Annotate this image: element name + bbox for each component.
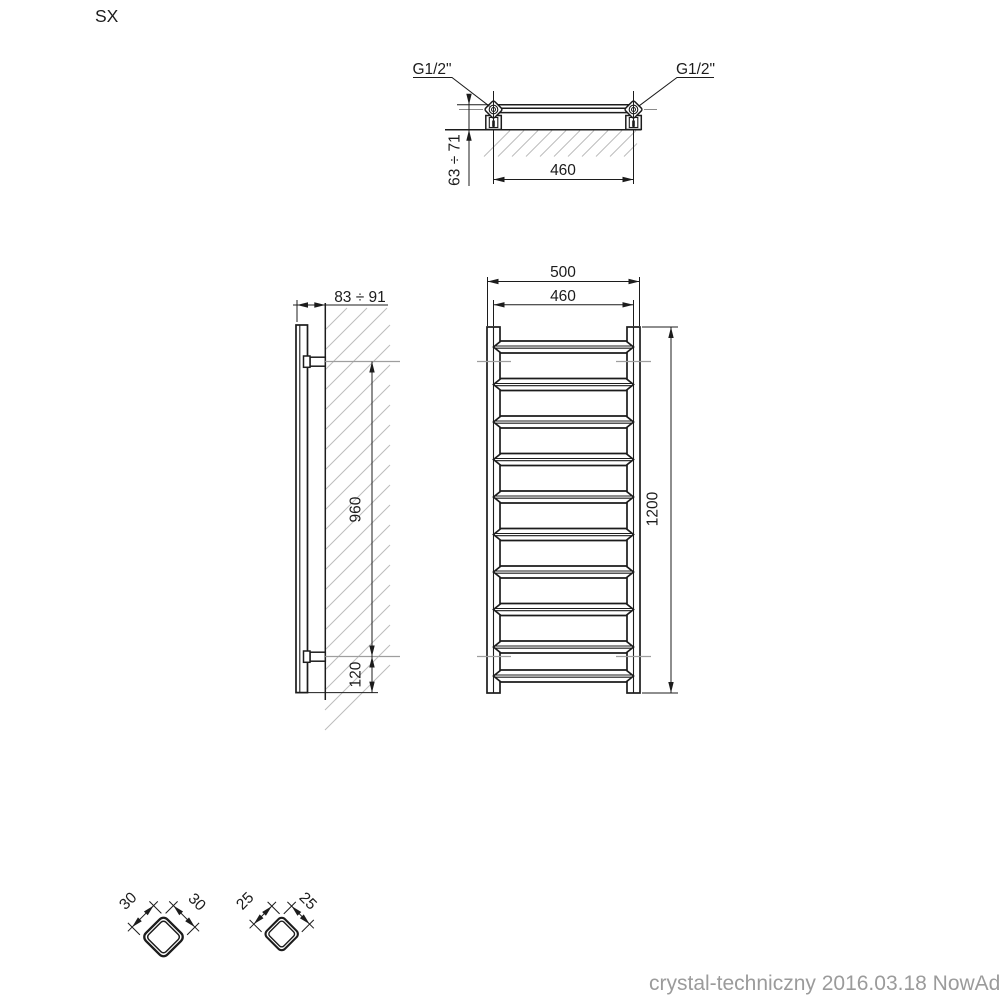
top-view-connection-right-label: G1/2" <box>676 61 715 78</box>
rung <box>494 416 634 428</box>
front-view-overall-width-label: 500 <box>550 264 576 281</box>
rung <box>494 491 634 503</box>
cross-section-25b-label: 25 <box>296 889 320 913</box>
cross-section-30a-label: 30 <box>116 889 140 913</box>
cross-section-30b-label: 30 <box>185 890 209 914</box>
drawing-svg: G1/2" G1/2" 63 ÷ 71 460 <box>0 0 1000 1000</box>
front-view-connection-spacing-label: 460 <box>550 288 576 305</box>
top-view: G1/2" G1/2" 63 ÷ 71 460 <box>412 61 715 186</box>
side-view-depth-label: 83 ÷ 91 <box>334 289 386 306</box>
sheet-corner-label: SX <box>95 6 119 26</box>
side-view-bottom-offset-label: 120 <box>348 661 365 687</box>
front-view-rungs <box>494 341 634 682</box>
rung <box>494 604 634 616</box>
side-view-dim-bracket-spacing <box>369 362 374 657</box>
top-view-leader-right <box>639 78 715 107</box>
footer-watermark: crystal-techniczny 2016.03.18 NowAd <box>649 972 1000 995</box>
rung <box>494 454 634 466</box>
top-view-wall-offset-label: 63 ÷ 71 <box>447 134 464 186</box>
cross-section-25a-label: 25 <box>233 889 257 913</box>
rung <box>494 566 634 578</box>
front-view: 500 460 1200 <box>477 264 678 693</box>
side-view-bracket-spacing-label: 960 <box>348 496 365 522</box>
side-view-bracket-top <box>304 356 326 367</box>
top-view-connection-left-label: G1/2" <box>412 61 451 78</box>
top-view-wall-hatching <box>484 131 637 157</box>
front-view-height-label: 1200 <box>645 491 662 526</box>
rung <box>494 379 634 391</box>
cross-section-vertical-tube: 30 30 <box>116 889 209 959</box>
top-view-leader-left <box>413 78 490 107</box>
side-view: 83 ÷ 91 960 120 <box>293 289 400 730</box>
cross-section-rung-tube: 25 25 <box>233 889 320 952</box>
side-view-bracket-bottom <box>304 651 326 662</box>
rung <box>494 341 634 353</box>
rung <box>494 670 634 682</box>
top-view-dim-wall-offset <box>466 94 471 186</box>
rung <box>494 529 634 541</box>
technical-drawing-sheet: G1/2" G1/2" 63 ÷ 71 460 <box>0 0 1000 1000</box>
top-view-collector-bar <box>493 105 633 113</box>
rung <box>494 641 634 653</box>
top-view-spacing-label: 460 <box>550 162 576 179</box>
side-view-tube <box>296 325 308 693</box>
rung-front-edges <box>495 346 632 677</box>
